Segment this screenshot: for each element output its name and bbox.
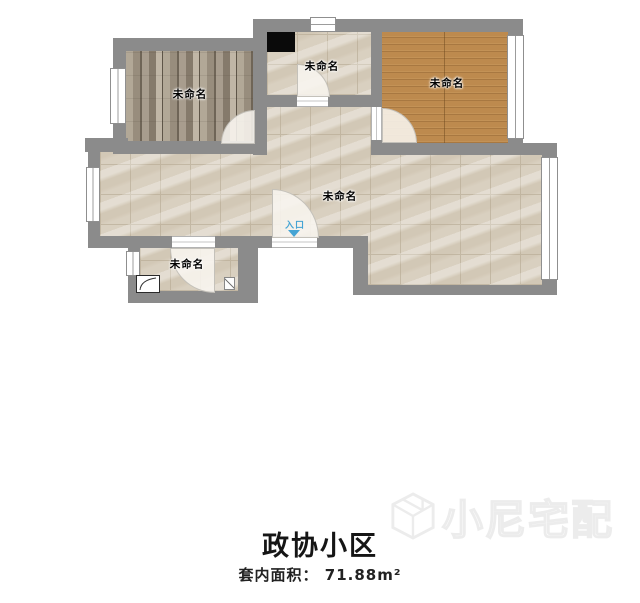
wall — [353, 285, 557, 295]
window[interactable] — [541, 157, 558, 280]
floor-drain-icon[interactable] — [224, 277, 235, 290]
window[interactable] — [126, 251, 140, 276]
watermark-text: 小尼宅配 — [442, 486, 614, 546]
entrance-arrow-icon — [288, 230, 300, 237]
plan-area-text: 套内面积： 71.88m² — [0, 564, 640, 585]
watermark-cube-icon — [390, 491, 436, 541]
window[interactable] — [86, 167, 100, 222]
window[interactable] — [110, 68, 126, 124]
window[interactable] — [507, 35, 524, 139]
wall — [382, 143, 557, 155]
door-opening — [371, 107, 382, 140]
bathtub-icon[interactable] — [136, 275, 160, 293]
living-area-label: 未命名 — [323, 189, 358, 204]
floorplan-canvas: 未命名 未命名 未命名 未命名 未命名 入口 — [0, 0, 640, 320]
wall — [238, 245, 258, 303]
bathroom-label: 未命名 — [170, 257, 205, 272]
wall — [113, 38, 267, 51]
area-label: 套内面积： — [239, 566, 319, 584]
wall — [253, 19, 523, 32]
kitchen-appliance-icon[interactable] — [267, 32, 295, 52]
window[interactable] — [310, 17, 336, 32]
wall — [253, 32, 267, 155]
area-value: 71.88m² — [325, 566, 402, 584]
floorplan-page: 未命名 未命名 未命名 未命名 未命名 入口 政协小区 套内面积： 71.88m… — [0, 0, 640, 603]
watermark: 小尼宅配 — [390, 486, 614, 546]
door-opening — [172, 236, 215, 248]
room-top-left-label: 未命名 — [173, 87, 208, 102]
kitchen-label: 未命名 — [305, 59, 340, 74]
room-top-right-label: 未命名 — [430, 76, 465, 91]
